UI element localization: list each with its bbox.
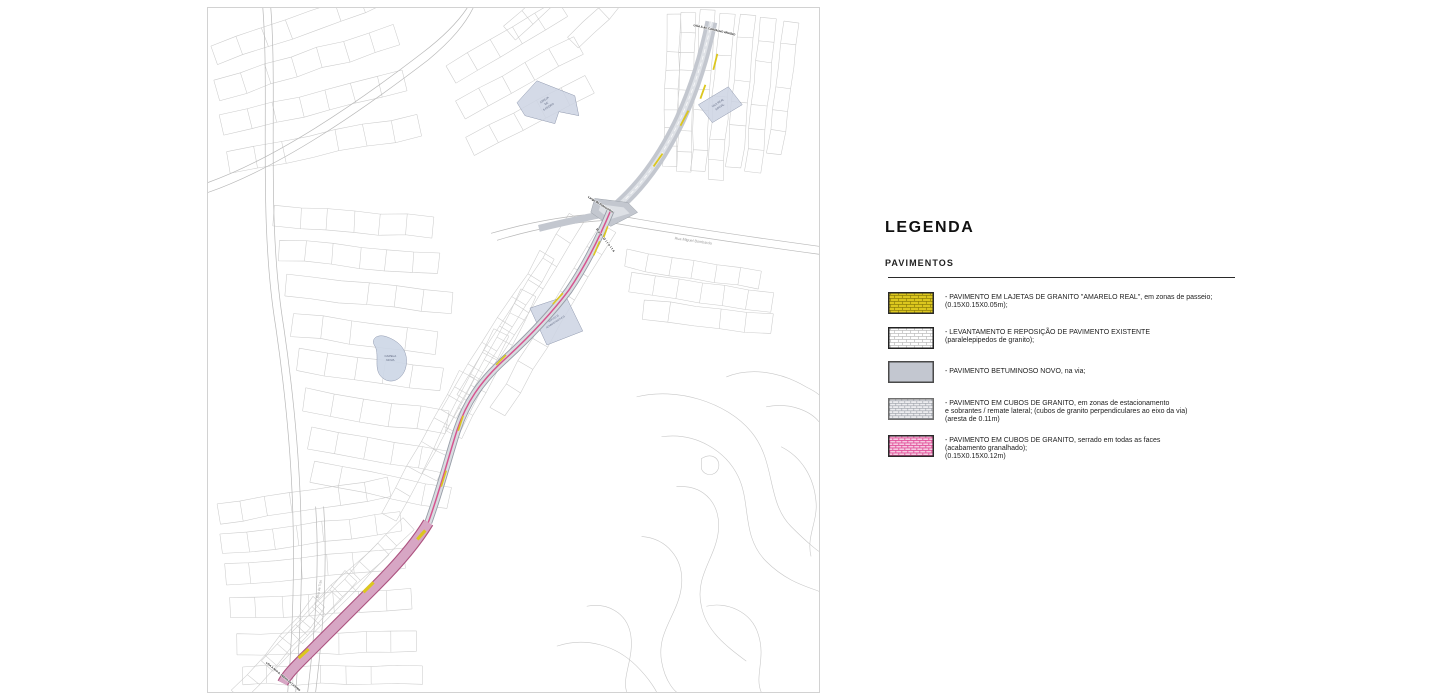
betuminoso-section [611,22,712,210]
legend-panel: LEGENDA PAVIMENTOS - PAVIMENTO EM LAJETA… [885,219,1237,286]
legend-item-reposicao-existente: - LEVANTAMENTO E REPOSIÇÃO DE PAVIMENTO … [888,327,1235,349]
swatch-cubos-estacionamento [888,398,934,420]
pavement-corridor [283,22,718,683]
serrado-centre-strip [428,210,610,522]
legend-text: - PAVIMENTO BETUMINOSO NOVO, na via; [945,361,1235,376]
legend-item-betuminoso: - PAVIMENTO BETUMINOSO NOVO, na via; [888,361,1235,383]
swatch-cubos-serrado [888,435,934,457]
legend-section-pavimentos: PAVIMENTOS [885,258,1237,268]
legend-item-cubos-serrado: - PAVIMENTO EM CUBOS DE GRANITO, serrado… [888,435,1235,461]
drawing-sheet: LIGA À AV. CARVALHO ARAÚJO Largo do Pelo… [0,0,1440,700]
street-label-rua-miguel-bombarda: Rua Miguel Bombarda [674,236,713,245]
legend-text: - PAVIMENTO EM CUBOS DE GRANITO, em zona… [945,398,1235,424]
swatch-reposicao-existente [888,327,934,349]
contour-lines [557,372,819,692]
legend-text: - PAVIMENTO EM LAJETAS DE GRANITO "AMARE… [945,292,1235,310]
legend-title: LEGENDA [885,219,1237,237]
swatch-betuminoso [888,361,934,383]
cubos-section [428,210,610,522]
pavement-plan-map: LIGA À AV. CARVALHO ARAÚJO Largo do Pelo… [207,7,820,693]
legend-item-cubos-estacionamento: - PAVIMENTO EM CUBOS DE GRANITO, em zona… [888,398,1235,424]
legend-item-lajetas-amarelo: - PAVIMENTO EM LAJETAS DE GRANITO "AMARE… [888,292,1235,314]
legend-text: - LEVANTAMENTO E REPOSIÇÃO DE PAVIMENTO … [945,327,1235,345]
legend-text: - PAVIMENTO EM CUBOS DE GRANITO, serrado… [945,435,1235,461]
map-canvas: LIGA À AV. CARVALHO ARAÚJO Largo do Pelo… [208,8,819,692]
swatch-lajetas-amarelo [888,292,934,314]
legend-divider [888,277,1235,278]
svg-text:NOVA: NOVA [386,358,394,362]
